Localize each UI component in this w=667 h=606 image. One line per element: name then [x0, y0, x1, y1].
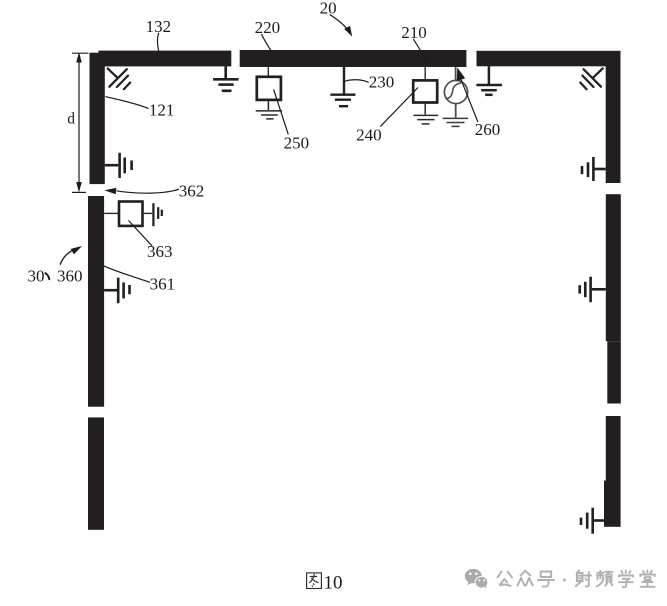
- svg-text:220: 220: [255, 18, 281, 37]
- svg-text:10: 10: [324, 573, 343, 594]
- svg-text:240: 240: [356, 125, 382, 144]
- svg-text:260: 260: [475, 120, 501, 139]
- svg-text:363: 363: [147, 242, 173, 261]
- svg-text:360: 360: [57, 267, 83, 286]
- svg-text:210: 210: [401, 23, 427, 42]
- svg-text:d: d: [67, 110, 75, 127]
- svg-text:30: 30: [28, 267, 45, 286]
- svg-text:361: 361: [150, 275, 176, 294]
- svg-text:362: 362: [179, 181, 205, 200]
- svg-text:250: 250: [284, 133, 310, 152]
- svg-text:20: 20: [320, 0, 337, 18]
- svg-text:121: 121: [149, 101, 175, 120]
- svg-text:230: 230: [369, 73, 395, 92]
- svg-text:132: 132: [146, 17, 172, 36]
